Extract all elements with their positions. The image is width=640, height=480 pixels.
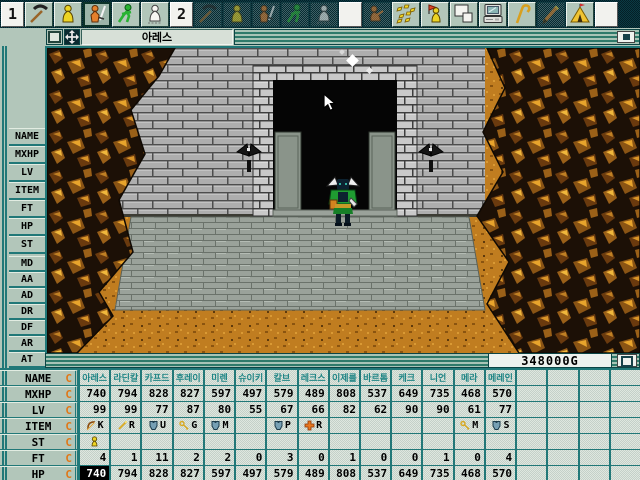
mxhp-cell-10: 537: [359, 386, 390, 401]
ft-cell-3: 11: [140, 450, 171, 465]
mxhp-cell-18: [609, 386, 640, 401]
person-standing-icon: [56, 3, 80, 25]
row-label-ft[interactable]: FTC: [0, 450, 78, 465]
lv-cell-9: 82: [328, 402, 359, 417]
name-cell-18[interactable]: [609, 370, 640, 385]
stat-sidebar: NAMEMXHPLVITEMFTHPST MDAAADDRDFARAT: [0, 46, 45, 368]
item-cell-18: [609, 418, 640, 433]
tent-button[interactable]: [566, 2, 594, 27]
hp-cell-13: 468: [453, 466, 484, 480]
name-cell-1[interactable]: 아레스: [78, 370, 109, 385]
hp-cell-18: [609, 466, 640, 480]
ft-cell-18: [609, 450, 640, 465]
windows-button[interactable]: [450, 2, 478, 27]
hp-cell-1: 740: [78, 466, 109, 480]
row-label-name[interactable]: NAMEC: [0, 370, 78, 385]
st-cell-5: [203, 434, 234, 449]
mxhp-cell-12: 735: [421, 386, 452, 401]
st-cell-13: [453, 434, 484, 449]
st-cell-11: [390, 434, 421, 449]
ft-cell-10: 0: [359, 450, 390, 465]
mxhp-cell-5: 597: [203, 386, 234, 401]
game-viewport[interactable]: [45, 46, 640, 353]
row-label-text: ST: [11, 436, 65, 449]
item-letter: U: [160, 420, 166, 431]
window-control-icon: [48, 31, 61, 43]
st-cell-6: [234, 434, 265, 449]
person-sitting-button[interactable]: [363, 2, 391, 27]
person-running-button[interactable]: [112, 2, 140, 27]
lv-cell-2: 99: [109, 402, 140, 417]
person-running-button[interactable]: [281, 2, 309, 27]
dungeon-scene: [47, 48, 640, 353]
hp-cell-2: 794: [109, 466, 140, 480]
window-drag-bar[interactable]: [234, 29, 640, 45]
name-cell-9[interactable]: 이제를: [328, 370, 359, 385]
person-sitting-icon: [365, 3, 389, 25]
lv-cell-1: 99: [78, 402, 109, 417]
armor-icon: [491, 420, 502, 431]
person-standing-button[interactable]: [223, 2, 251, 27]
hp-cell-4: 827: [172, 466, 203, 480]
ft-cell-1: 4: [78, 450, 109, 465]
ft-cell-12: 1: [421, 450, 452, 465]
window-corner-icon: [623, 34, 630, 40]
stat-aa-button[interactable]: AA: [9, 272, 45, 288]
sidebar-edge-rail: [2, 46, 7, 368]
st-cell-7: [265, 434, 296, 449]
ft-cell-4: 2: [172, 450, 203, 465]
cane-button[interactable]: [508, 2, 536, 27]
row-label-item[interactable]: ITEMC: [0, 418, 78, 433]
name-cell-7[interactable]: 칼브: [265, 370, 296, 385]
key-icon: [460, 420, 471, 431]
hp-cell-15: [515, 466, 546, 480]
hp-cell-16: [546, 466, 577, 480]
item-cell-7: P: [265, 418, 296, 433]
hp-cell-5: 597: [203, 466, 234, 480]
hp-cell-6: 497: [234, 466, 265, 480]
person-standing-button[interactable]: [54, 2, 82, 27]
mxhp-cell-7: 579: [265, 386, 296, 401]
item-letter: R: [316, 420, 322, 431]
mxhp-cell-8: 489: [297, 386, 328, 401]
item-cell-1: K: [78, 418, 109, 433]
row-label-suffix: C: [65, 436, 72, 449]
rock-wall-right: [477, 48, 640, 353]
st-cell-16: [546, 434, 577, 449]
name-cell-17[interactable]: [578, 370, 609, 385]
ft-cell-7: 3: [265, 450, 296, 465]
item-cell-5: M: [203, 418, 234, 433]
stat-ft-button[interactable]: FT: [9, 200, 45, 218]
item-cell-12: [421, 418, 452, 433]
pencil-button[interactable]: [537, 2, 565, 27]
stat-st-button[interactable]: ST: [9, 236, 45, 254]
row-label-suffix: C: [65, 388, 72, 401]
hp-cell-17: [578, 466, 609, 480]
person-white-button[interactable]: [141, 2, 169, 27]
stat-ar-button[interactable]: AR: [9, 336, 45, 352]
game-window: 12 아레스 NAMEMXHPLVITEMFTHPST MDAAADDRDFAR…: [0, 0, 640, 480]
hp-cell-11: 649: [390, 466, 421, 480]
blank-button[interactable]: [595, 2, 618, 27]
hp-cell-8: 489: [297, 466, 328, 480]
row-label-suffix: C: [65, 452, 72, 465]
table-row-hp: HPC7407948288275974975794898085376497354…: [0, 466, 640, 480]
blank-button[interactable]: [339, 2, 362, 27]
item-cell-17: [578, 418, 609, 433]
st-cell-4: [172, 434, 203, 449]
name-cell-16[interactable]: [546, 370, 577, 385]
person-standing-icon: [225, 3, 249, 25]
ft-cell-6: 0: [234, 450, 265, 465]
mxhp-cell-13: 468: [453, 386, 484, 401]
armor-icon: [273, 420, 284, 431]
st-cell-1: [78, 434, 109, 449]
item-cell-10: [359, 418, 390, 433]
person-white-button[interactable]: [310, 2, 338, 27]
stat-ad-button[interactable]: AD: [9, 288, 45, 304]
name-cell-2[interactable]: 라딘칼: [109, 370, 140, 385]
person-sword-icon: [85, 3, 109, 25]
pickaxe-button[interactable]: [25, 2, 53, 27]
key-icon: [179, 420, 190, 431]
person-white-icon: [143, 3, 167, 25]
mxhp-cell-4: 827: [172, 386, 203, 401]
lv-cell-8: 66: [297, 402, 328, 417]
mxhp-cell-1: 740: [78, 386, 109, 401]
lv-cell-11: 90: [390, 402, 421, 417]
item-cell-16: [546, 418, 577, 433]
mxhp-cell-16: [546, 386, 577, 401]
item-cell-13: M: [453, 418, 484, 433]
row-label-hp[interactable]: HPC: [0, 466, 78, 480]
stone-floor: [115, 217, 485, 310]
window-move-button[interactable]: [64, 29, 80, 45]
computer-button[interactable]: [479, 2, 507, 27]
status-person-icon: [89, 436, 100, 447]
gold-amount: 348000G: [488, 353, 612, 368]
mxhp-cell-15: [515, 386, 546, 401]
item-letter: G: [191, 420, 197, 431]
item-letter: R: [129, 420, 135, 431]
st-cell-2: [109, 434, 140, 449]
name-cell-14[interactable]: 메레인: [484, 370, 515, 385]
ft-cell-8: 0: [297, 450, 328, 465]
stat-at-button[interactable]: AT: [9, 352, 45, 368]
table-row-name: NAMEC아레스라딘칼카프드후레이미렌슈이키칼브레크스이제를바르톰케크니언메라메…: [0, 370, 640, 386]
armor-icon: [210, 420, 221, 431]
lv-cell-10: 62: [359, 402, 390, 417]
person-sword-button[interactable]: [83, 2, 111, 27]
windows-icon: [452, 3, 476, 25]
lv-cell-14: 77: [484, 402, 515, 417]
ft-cell-11: 0: [390, 450, 421, 465]
ft-cell-15: [515, 450, 546, 465]
st-cell-18: [609, 434, 640, 449]
mxhp-cell-9: 808: [328, 386, 359, 401]
gems-icon: [394, 3, 418, 25]
mxhp-cell-11: 649: [390, 386, 421, 401]
item-cell-2: R: [109, 418, 140, 433]
st-cell-8: [297, 434, 328, 449]
st-cell-9: [328, 434, 359, 449]
ft-cell-2: 1: [109, 450, 140, 465]
name-cell-8[interactable]: 레크스: [297, 370, 328, 385]
item-cell-3: U: [140, 418, 171, 433]
name-cell-3[interactable]: 카프드: [140, 370, 171, 385]
lv-cell-16: [546, 402, 577, 417]
toolbar: 12: [0, 0, 640, 28]
row-label-suffix: C: [65, 420, 72, 433]
row-label-st[interactable]: STC: [0, 434, 78, 449]
item-cell-4: G: [172, 418, 203, 433]
st-cell-15: [515, 434, 546, 449]
pickaxe-button[interactable]: [194, 2, 222, 27]
hp-cell-10: 537: [359, 466, 390, 480]
table-row-st: STC: [0, 434, 640, 450]
name-cell-10[interactable]: 바르톰: [359, 370, 390, 385]
cross-icon: [304, 420, 315, 431]
table-row-ft: FTC411122030100104: [0, 450, 640, 466]
window-corner-button[interactable]: [617, 31, 635, 43]
stat-df-button[interactable]: DF: [9, 320, 45, 336]
ft-cell-9: 1: [328, 450, 359, 465]
item-cell-9: [328, 418, 359, 433]
computer-icon: [481, 3, 505, 25]
pickaxe-icon: [196, 3, 220, 25]
pencil-icon: [539, 3, 563, 25]
slot-label: 2: [177, 5, 186, 23]
stat-lv-button[interactable]: LV: [9, 164, 45, 182]
lv-cell-15: [515, 402, 546, 417]
stat-mxhp-button[interactable]: MXHP: [9, 146, 45, 164]
table-row-lv: LVC9999778780556766826290906177: [0, 402, 640, 418]
stat-dr-button[interactable]: DR: [9, 304, 45, 320]
mxhp-cell-3: 828: [140, 386, 171, 401]
mxhp-cell-2: 794: [109, 386, 140, 401]
item-letter: M: [472, 420, 478, 431]
stat-md-button[interactable]: MD: [9, 256, 45, 272]
lv-cell-7: 67: [265, 402, 296, 417]
item-letter: S: [503, 420, 509, 431]
pickaxe-icon: [27, 3, 51, 25]
item-cell-6: [234, 418, 265, 433]
row-label-text: LV: [11, 404, 65, 417]
gems-button[interactable]: [392, 2, 420, 27]
st-cell-17: [578, 434, 609, 449]
row-label-text: NAME: [11, 372, 65, 385]
item-cell-8: R: [297, 418, 328, 433]
name-cell-4[interactable]: 후레이: [172, 370, 203, 385]
stat-hp-button[interactable]: HP: [9, 218, 45, 236]
hp-cell-7: 579: [265, 466, 296, 480]
name-cell-11[interactable]: 케크: [390, 370, 421, 385]
lv-cell-18: [609, 402, 640, 417]
person-flag-button[interactable]: [421, 2, 449, 27]
stat-name-button[interactable]: NAME: [9, 128, 45, 146]
name-cell-5[interactable]: 미렌: [203, 370, 234, 385]
cane-icon: [510, 3, 534, 25]
lv-cell-13: 61: [453, 402, 484, 417]
hp-cell-12: 735: [421, 466, 452, 480]
tent-icon: [568, 3, 592, 25]
hp-cell-3: 828: [140, 466, 171, 480]
name-cell-13[interactable]: 메라: [453, 370, 484, 385]
item-letter: P: [285, 420, 291, 431]
item-cell-15: [515, 418, 546, 433]
person-white-icon: [312, 3, 336, 25]
item-cell-14: S: [484, 418, 515, 433]
row-label-suffix: C: [65, 404, 72, 417]
row-label-text: ITEM: [11, 420, 65, 433]
stat-group-primary: NAMEMXHPLVITEMFTHPST: [9, 128, 45, 254]
stat-group-secondary: MDAAADDRDFARAT: [9, 256, 45, 368]
name-cell-6[interactable]: 슈이키: [234, 370, 265, 385]
item-letter: K: [98, 420, 104, 431]
mxhp-cell-17: [578, 386, 609, 401]
table-row-item: ITEMCKRUGMPRMS: [0, 418, 640, 434]
name-cell-12[interactable]: 니언: [421, 370, 452, 385]
table-row-mxhp: MXHPC74079482882759749757948980853764973…: [0, 386, 640, 402]
map-window-title[interactable]: 아레스: [81, 29, 233, 45]
ft-cell-5: 2: [203, 450, 234, 465]
row-label-text: MXHP: [11, 388, 65, 401]
stat-item-button[interactable]: ITEM: [9, 182, 45, 200]
mxhp-cell-14: 570: [484, 386, 515, 401]
item-cell-11: [390, 418, 421, 433]
status-corner-button[interactable]: [617, 354, 637, 367]
lv-cell-12: 90: [421, 402, 452, 417]
st-cell-3: [140, 434, 171, 449]
row-label-suffix: C: [65, 468, 72, 480]
hp-cell-9: 808: [328, 466, 359, 480]
bow-icon: [86, 420, 97, 431]
status-bar: 348000G: [45, 353, 640, 368]
lv-cell-5: 80: [203, 402, 234, 417]
person-running-icon: [114, 3, 138, 25]
party-table: NAMEC아레스라딘칼카프드후레이미렌슈이키칼브레크스이제를바르톰케크니언메라메…: [0, 368, 640, 480]
row-label-lv[interactable]: LVC: [0, 402, 78, 417]
row-label-text: HP: [11, 468, 65, 480]
name-cell-15[interactable]: [515, 370, 546, 385]
st-cell-12: [421, 434, 452, 449]
window-control-button[interactable]: [46, 29, 63, 45]
person-running-icon: [283, 3, 307, 25]
slot-2-button[interactable]: 2: [170, 2, 193, 27]
person-sword-icon: [254, 3, 278, 25]
ft-cell-16: [546, 450, 577, 465]
slot-label: 1: [8, 5, 17, 23]
ft-cell-14: 4: [484, 450, 515, 465]
mxhp-cell-6: 497: [234, 386, 265, 401]
ft-cell-13: 0: [453, 450, 484, 465]
lv-cell-4: 87: [172, 402, 203, 417]
move-arrows-icon: [65, 30, 79, 44]
wand-icon: [117, 420, 128, 431]
person-sword-button[interactable]: [252, 2, 280, 27]
row-label-suffix: C: [65, 372, 72, 385]
person-flag-icon: [423, 3, 447, 25]
st-cell-10: [359, 434, 390, 449]
st-cell-14: [484, 434, 515, 449]
slot-1-button[interactable]: 1: [1, 2, 24, 27]
armor-icon: [148, 420, 159, 431]
ft-cell-17: [578, 450, 609, 465]
hp-cell-14: 570: [484, 466, 515, 480]
status-corner-icon: [621, 356, 633, 367]
row-label-mxhp[interactable]: MXHPC: [0, 386, 78, 401]
lv-cell-6: 55: [234, 402, 265, 417]
row-label-text: FT: [11, 452, 65, 465]
item-letter: M: [222, 420, 228, 431]
lv-cell-3: 77: [140, 402, 171, 417]
lv-cell-17: [578, 402, 609, 417]
